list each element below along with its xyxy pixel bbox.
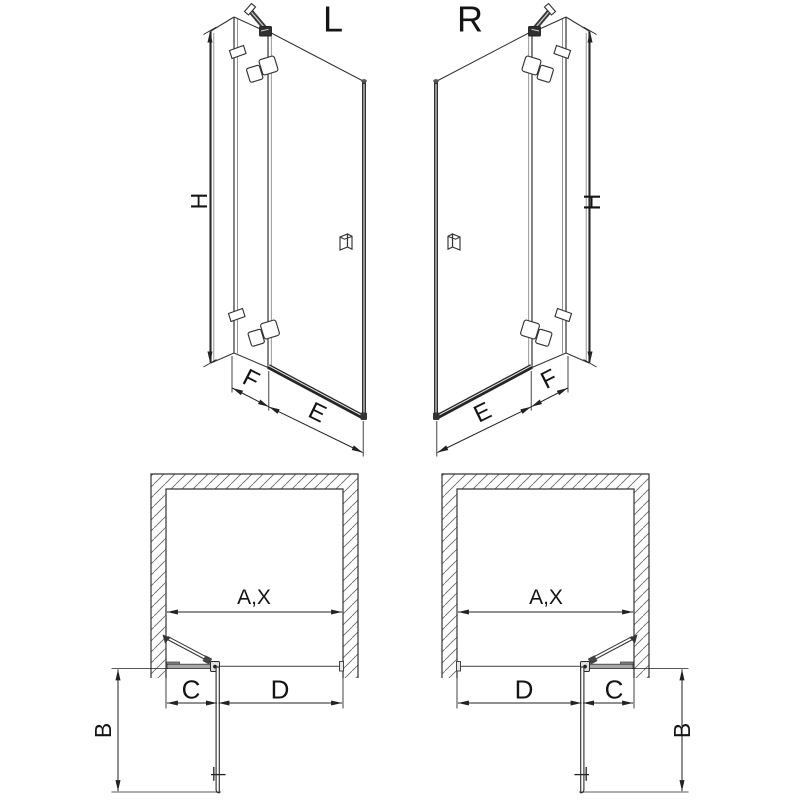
shower-door-technical-drawing: L R H F E H E F A,X C D B A,X D C B [0,0,800,800]
dim-label-fixed-left: F [238,364,263,395]
plan-view-right [457,612,689,793]
dim-label-height-right: H [579,194,605,211]
diagram-canvas: L R H F E H E F A,X C D B A,X D C B [0,0,800,800]
variant-label-left: L [323,0,343,40]
dim-label-height-left: H [186,193,212,210]
dim-label-fixed-plan-right: C [605,675,624,705]
dim-label-opening-left: A,X [237,586,271,609]
variant-label-right: R [457,0,483,40]
dim-label-door-left: E [304,397,330,428]
dim-label-door-right: E [470,397,496,428]
dim-label-fixed-right: F [536,364,561,395]
dim-label-door-plan-right: D [515,675,534,705]
dim-label-opening-right: A,X [529,586,563,609]
dim-label-fixed-plan-left: C [182,675,201,705]
dim-label-door-plan-left: D [271,675,290,705]
dim-label-swing-right: B [669,723,695,738]
dim-label-swing-left: B [90,723,116,738]
perspective-view-right [433,4,597,457]
plan-view-left [112,612,344,793]
perspective-view-left [204,4,368,457]
